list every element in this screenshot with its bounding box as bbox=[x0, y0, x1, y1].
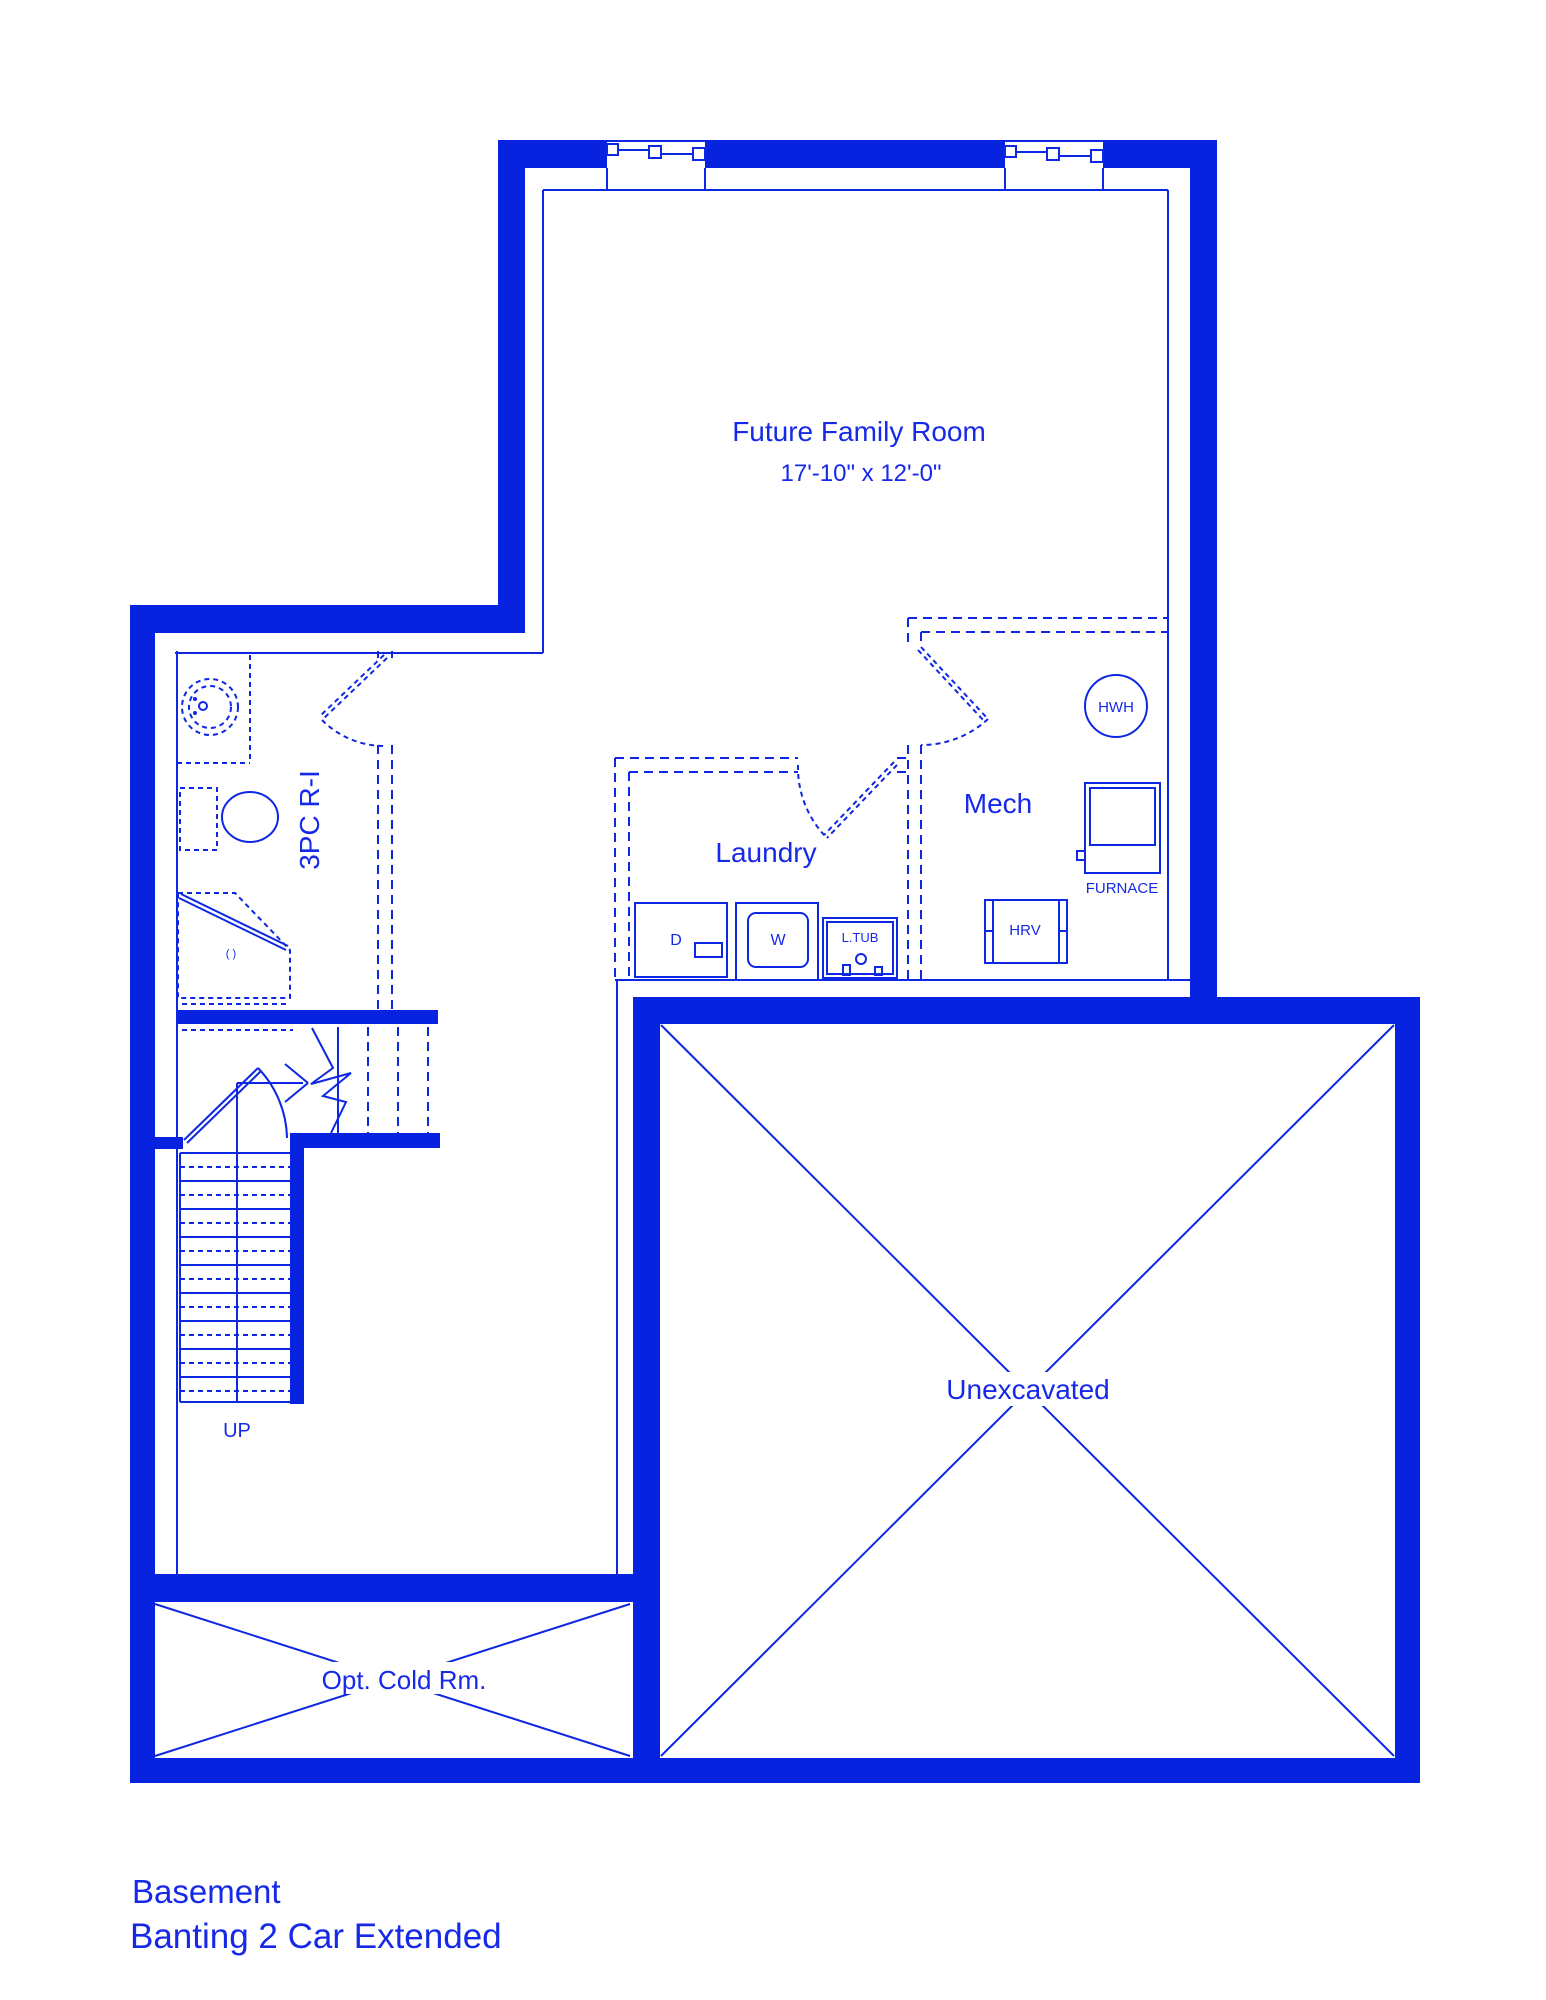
laundry-room: D W L.TUB Laundry bbox=[615, 758, 911, 980]
bathroom-door-swing-icon bbox=[319, 655, 387, 746]
hrv-label: HRV bbox=[1009, 922, 1040, 939]
stair-door-swing-icon bbox=[184, 1068, 287, 1143]
floor-plan-drawing: ( ) 3PC R-I D W bbox=[0, 0, 1546, 2000]
wall-stair-landing bbox=[290, 1133, 440, 1148]
washer-label: W bbox=[770, 932, 786, 949]
mech-door-swing-icon bbox=[918, 647, 988, 745]
wall-unexcavated-left bbox=[633, 1024, 660, 1758]
hwh-label: HWH bbox=[1098, 699, 1134, 716]
furnace-icon: FURNACE bbox=[1077, 783, 1160, 897]
wall-right bbox=[1190, 140, 1217, 1024]
cold-room: Opt. Cold Rm. bbox=[155, 1604, 630, 1756]
laundry-label: Laundry bbox=[715, 837, 816, 868]
interior-face-lines bbox=[175, 190, 1190, 1574]
window-1-icon bbox=[607, 141, 705, 190]
model-name: Banting 2 Car Extended bbox=[130, 1917, 502, 1956]
unexcavated-label: Unexcavated bbox=[946, 1374, 1109, 1405]
mech-label: Mech bbox=[964, 788, 1032, 819]
mech-room: HWH FURNACE HRV Mech bbox=[908, 618, 1168, 980]
wall-unexcavated-top bbox=[633, 997, 1420, 1024]
wall-bottom bbox=[130, 1758, 1420, 1783]
wall-stair-top bbox=[177, 1010, 438, 1024]
cold-room-label: Opt. Cold Rm. bbox=[322, 1665, 487, 1695]
family-room-label: Future Family Room bbox=[732, 416, 986, 447]
wall-bathroom-top bbox=[130, 605, 525, 633]
floor-name: Basement bbox=[132, 1873, 281, 1910]
stair-treads bbox=[180, 1083, 290, 1402]
hrv-icon: HRV bbox=[985, 900, 1067, 963]
window-2-icon bbox=[1005, 141, 1103, 190]
furnace-label: FURNACE bbox=[1086, 880, 1159, 897]
vanity-sink-icon bbox=[177, 655, 250, 763]
break-line-icon bbox=[311, 1028, 351, 1133]
dryer-icon: D bbox=[635, 903, 727, 977]
exterior-walls bbox=[130, 140, 1420, 1783]
unexcavated-area: Unexcavated bbox=[661, 1025, 1394, 1756]
wall-outer-left bbox=[130, 605, 155, 1783]
laundry-tub-label: L.TUB bbox=[842, 930, 879, 945]
family-room-dimensions: 17'-10" x 12'-0" bbox=[781, 460, 942, 487]
bathroom-rough-in: ( ) 3PC R-I bbox=[177, 651, 392, 1010]
laundry-door-swing-icon bbox=[798, 762, 897, 838]
laundry-tub-icon: L.TUB bbox=[823, 918, 897, 978]
washer-icon: W bbox=[736, 903, 818, 980]
corner-shower-icon: ( ) bbox=[178, 893, 290, 1004]
floor-plan-page: ( ) 3PC R-I D W bbox=[0, 0, 1546, 2000]
wall-family-room-left bbox=[498, 140, 525, 633]
toilet-icon bbox=[180, 788, 278, 850]
stair-direction-arrow-icon bbox=[237, 1064, 308, 1102]
wall-top-mid-segment bbox=[705, 140, 1005, 168]
wall-stair-stub bbox=[130, 1137, 183, 1149]
wall-stairwell-right bbox=[290, 1148, 304, 1404]
shower-drain-label: ( ) bbox=[226, 948, 236, 960]
wall-cold-room-top bbox=[130, 1574, 660, 1602]
wall-unexcavated-right bbox=[1395, 997, 1420, 1783]
hot-water-heater-icon: HWH bbox=[1085, 675, 1147, 737]
dryer-label: D bbox=[670, 932, 682, 949]
title-block: Basement Banting 2 Car Extended bbox=[130, 1873, 502, 1956]
bathroom-label: 3PC R-I bbox=[294, 770, 325, 870]
stairs-up-label: UP bbox=[223, 1420, 251, 1442]
